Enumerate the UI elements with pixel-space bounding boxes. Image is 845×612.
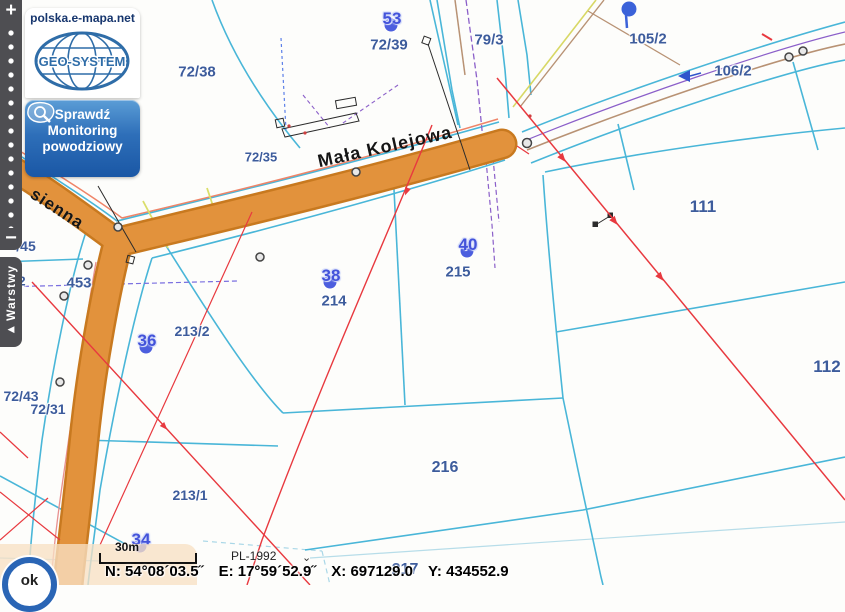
geo-system-globe-icon: GEO-SYSTEM (32, 30, 133, 92)
flood-monitoring-button[interactable]: Sprawdź Monitoring powodziowy (25, 100, 140, 177)
parcel-label: 213/2 (174, 323, 209, 339)
parcel-label: 216 (432, 459, 459, 477)
layers-panel-tab[interactable]: Warstwy ◀ (0, 257, 22, 347)
ok-button-label: ok (21, 572, 39, 589)
parcel-label: 453 (66, 275, 91, 292)
zoom-out-icon[interactable]: − (5, 230, 17, 250)
zoom-slider[interactable]: + − (0, 0, 22, 250)
address-marker-number: 40 (459, 235, 478, 255)
poland-magnifier-icon (25, 101, 59, 125)
svg-text:GEO-SYSTEM: GEO-SYSTEM (39, 54, 126, 69)
coord-e: E: 17°59´52.9˝ (219, 563, 317, 580)
collapse-left-icon: ◀ (8, 324, 15, 335)
parcel-label: 112 (813, 357, 840, 377)
parcel-label: 72/39 (370, 37, 408, 54)
parcel-label: 72/31 (30, 401, 65, 417)
measure-arrowheads (160, 153, 667, 432)
scale-label: 30m (92, 540, 162, 554)
coord-y: Y: 434552.9 (428, 563, 509, 580)
site-name: polska.e-mapa.net (25, 11, 140, 25)
parcel-label: 214 (321, 293, 346, 310)
crs-label[interactable]: PL-1992 (231, 549, 276, 563)
flood-button-line2: Monitoring (25, 123, 140, 139)
parcel-label: 215 (445, 264, 470, 281)
coord-n: N: 54°08´03.5˝ (105, 563, 204, 580)
parcel-label: 72/38 (178, 64, 216, 81)
layers-tab-label: Warstwy (4, 265, 18, 321)
address-marker-number: 36 (138, 331, 157, 351)
flow-arrow-icon (678, 70, 701, 82)
parcel-label: 79/3 (474, 32, 503, 49)
map-pin-icon (622, 2, 637, 29)
flood-button-line3: powodziowy (25, 139, 140, 155)
coord-x: X: 697129.0 (331, 563, 413, 580)
address-marker-number: 53 (383, 9, 402, 29)
parcel-label: 111 (690, 197, 717, 217)
zoom-in-icon[interactable]: + (5, 0, 16, 24)
parcel-label: 72/35 (245, 150, 278, 165)
coordinates-statusbar: N: 54°08´03.5˝E: 17°59´52.9˝X: 697129.0Y… (105, 563, 524, 580)
site-logo-card[interactable]: polska.e-mapa.net GEO-SYSTEM (25, 8, 140, 98)
parcel-label: 105/2 (629, 31, 667, 48)
zoom-slider-track[interactable] (7, 26, 15, 228)
address-marker-number: 38 (322, 266, 341, 286)
parcel-label: 106/2 (714, 63, 752, 80)
parcel-label: 213/1 (172, 487, 207, 503)
